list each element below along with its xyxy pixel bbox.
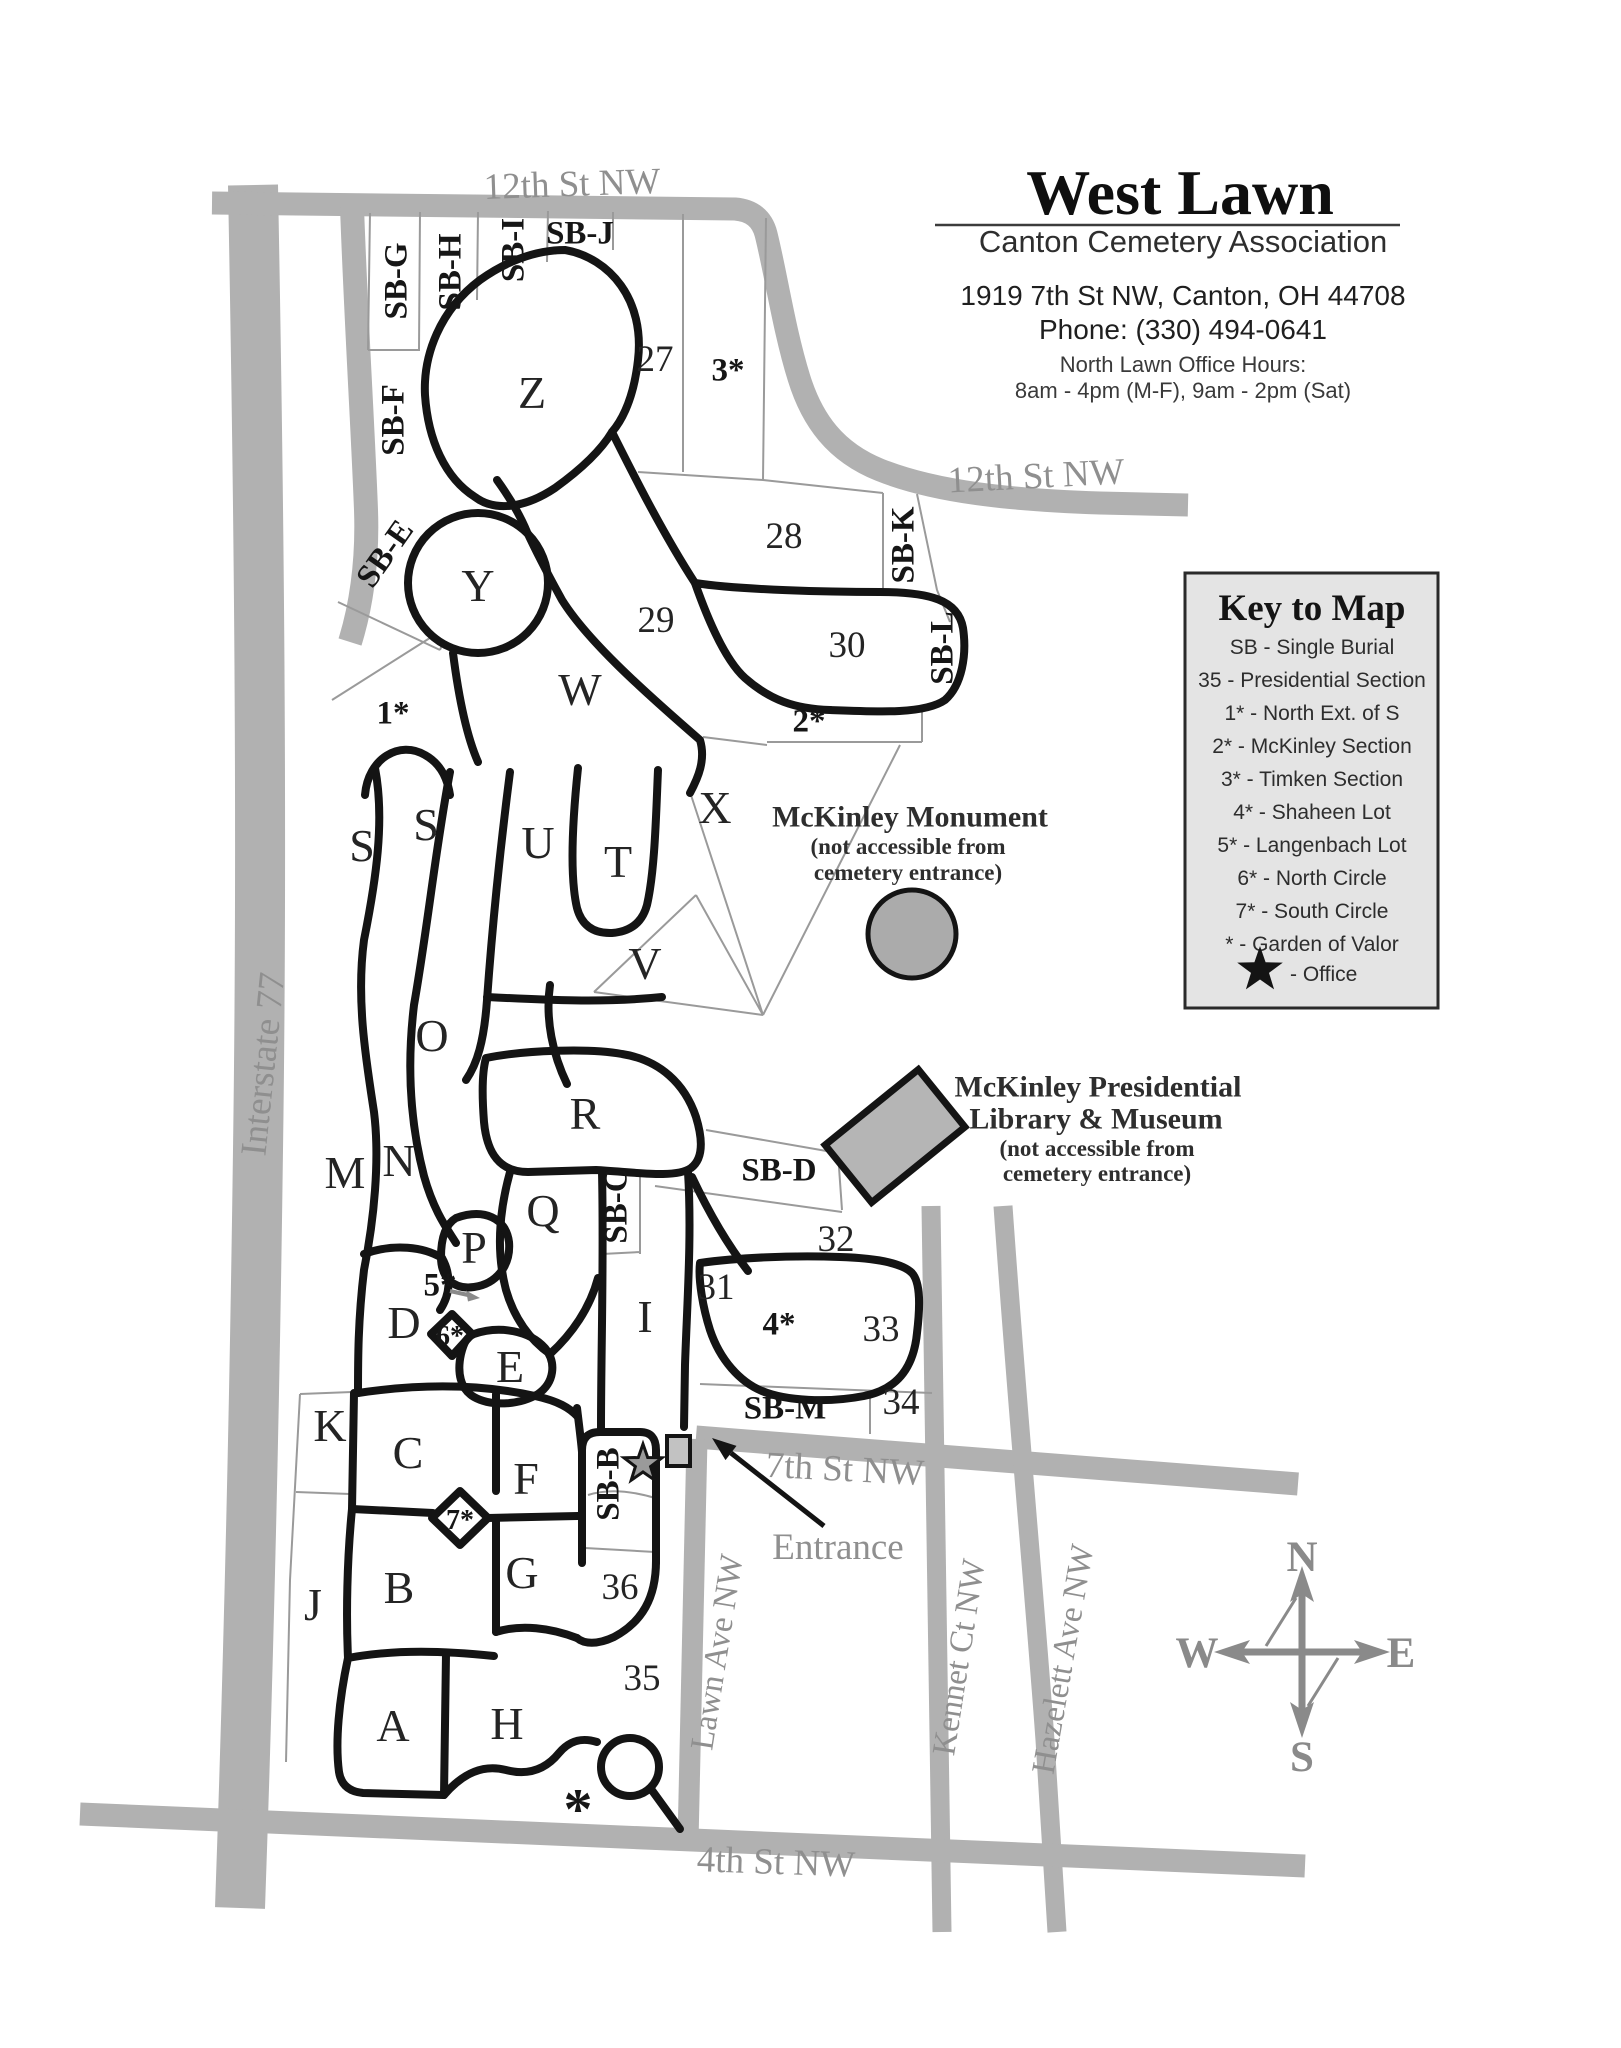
number-label-35: 35 (624, 1658, 661, 1699)
section-label-d: D (387, 1297, 420, 1348)
map-canvas: Z Y W S S U T X V O N M R Q P D E I K C … (0, 0, 1621, 2048)
legend-entry-7star: 7* - South Circle (1236, 900, 1389, 923)
compass-rose: N E S W (1176, 1534, 1416, 1781)
section-label-y: Y (461, 560, 494, 611)
special-label-5star: 5* (424, 1268, 457, 1304)
org-name: Canton Cemetery Association (979, 224, 1387, 259)
section-label-g: G (505, 1547, 538, 1598)
legend-entry-4star: 4* - Shaheen Lot (1233, 801, 1391, 824)
mckinley-monument-shape (868, 890, 956, 978)
number-label-30: 30 (829, 625, 866, 666)
corridor-i-right (684, 1172, 690, 1427)
section-c-bottom (352, 1509, 433, 1513)
road-kennet-ct (931, 1206, 942, 1932)
museum-title-2: Library & Museum (969, 1103, 1222, 1136)
section-c-left (352, 1393, 354, 1509)
section-label-e: E (496, 1341, 524, 1392)
street-label-12th-west: 12th St NW (483, 161, 661, 208)
sb-label-i: SB-I (496, 218, 532, 282)
section-label-j: J (304, 1579, 322, 1630)
section-label-b: B (384, 1562, 415, 1613)
legend-entry-garden: * - Garden of Valor (1225, 933, 1399, 956)
number-label-36: 36 (602, 1567, 639, 1608)
office-building-shape (667, 1436, 690, 1466)
museum-note-2: cemetery entrance) (1003, 1161, 1191, 1186)
garden-circle-tail (651, 1789, 680, 1829)
section-label-f: F (513, 1453, 539, 1504)
entrance-label: Entrance (772, 1527, 903, 1568)
divider-a-h (444, 1654, 446, 1795)
special-label-3star: 3* (712, 353, 745, 389)
section-label-v: V (628, 938, 661, 989)
divider-y-w-left (453, 653, 478, 762)
legend-entry-sb: SB - Single Burial (1230, 636, 1395, 659)
section-b-bottom (348, 1652, 494, 1658)
number-label-32: 32 (818, 1219, 855, 1260)
legend-entry-office: - Office (1290, 963, 1357, 986)
divider-q-e (550, 1278, 598, 1354)
divider-g-h (496, 1628, 577, 1638)
monument-title: McKinley Monument (772, 801, 1048, 834)
number-label-31: 31 (698, 1267, 735, 1308)
legend-entry-5star: 5* - Langenbach Lot (1217, 834, 1406, 857)
sb-label-l: SB-L (925, 611, 961, 684)
section-b-left (347, 1509, 352, 1658)
special-label-garden-star: * (564, 1776, 593, 1841)
number-label-34: 34 (883, 1382, 920, 1423)
museum-note-1: (not accessible from (999, 1136, 1194, 1161)
road-hazelett-ave (1003, 1206, 1057, 1932)
sb-label-m: SB-M (744, 1391, 827, 1427)
langenbach-arrow-head (466, 1291, 480, 1302)
special-label-7star: 7* (446, 1505, 474, 1536)
section-label-h: H (490, 1698, 523, 1749)
special-label-6star: 6* (436, 1321, 464, 1352)
section-label-u: U (521, 817, 554, 868)
section-label-i: I (637, 1291, 652, 1342)
mckinley-museum-shape (825, 1069, 965, 1202)
page-title: West Lawn (1026, 157, 1334, 228)
section-label-n: N (382, 1135, 415, 1186)
legend-entry-35: 35 - Presidential Section (1198, 669, 1426, 692)
compass-label-e: E (1387, 1630, 1416, 1677)
sb-label-f: SB-F (376, 384, 412, 456)
special-label-1star: 1* (377, 696, 410, 732)
legend-entry-1star: 1* - North Ext. of S (1224, 702, 1399, 725)
section-label-t: T (604, 836, 632, 887)
map-labels: Z Y W S S U T X V O N M R Q P D E I K C … (233, 161, 1241, 1886)
legend-box: Key to Map SB - Single Burial 35 - Presi… (1185, 573, 1438, 1008)
special-label-4star: 4* (763, 1307, 796, 1343)
cemetery-map-page: Z Y W S S U T X V O N M R Q P D E I K C … (0, 0, 1621, 2048)
address-line: 1919 7th St NW, Canton, OH 44708 (960, 280, 1405, 311)
monument-note-1: (not accessible from (810, 834, 1005, 859)
compass-label-n: N (1286, 1534, 1317, 1581)
office-hours-label: North Lawn Office Hours: (1060, 352, 1307, 377)
divider-m-d (364, 1247, 442, 1258)
street-label-7th: 7th St NW (765, 1445, 925, 1494)
legend-title: Key to Map (1218, 588, 1405, 629)
office-hours-value: 8am - 4pm (M-F), 9am - 2pm (Sat) (1015, 378, 1351, 403)
section-label-r: R (570, 1088, 601, 1139)
number-label-29: 29 (638, 600, 675, 641)
section-label-m: M (325, 1147, 366, 1198)
legend-entry-3star: 3* - Timken Section (1221, 768, 1403, 791)
divider-v-bottom (487, 997, 662, 1000)
section-label-x: X (698, 782, 731, 833)
legend-entry-2star: 2* - McKinley Section (1212, 735, 1412, 758)
street-label-4th: 4th St NW (696, 1839, 856, 1886)
number-label-33: 33 (863, 1309, 900, 1350)
number-label-28: 28 (766, 516, 803, 557)
compass-label-w: W (1176, 1630, 1219, 1677)
section-label-w: W (558, 664, 602, 715)
legend-entry-6star: 6* - North Circle (1237, 867, 1386, 890)
finger-u-left (466, 772, 510, 1080)
section-label-q: Q (526, 1185, 559, 1236)
section-label-a: A (376, 1700, 409, 1751)
compass-se-fin (1308, 1658, 1338, 1706)
special-label-2star: 2* (793, 704, 826, 740)
section-label-c: C (393, 1427, 424, 1478)
phone-line: Phone: (330) 494-0641 (1039, 314, 1327, 345)
section-label-z: Z (518, 367, 546, 418)
header-block: West Lawn Canton Cemetery Association 19… (935, 157, 1406, 403)
sb-label-d: SB-D (741, 1153, 816, 1189)
road-lawn-ave (688, 1439, 697, 1842)
section-label-s-west: S (349, 820, 375, 871)
sb-label-j: SB-J (546, 216, 614, 252)
compass-nw-fin (1266, 1598, 1296, 1646)
sb-label-c: SB-C (599, 1168, 635, 1243)
sb-label-g: SB-G (379, 242, 415, 319)
section-label-k: K (313, 1400, 346, 1451)
number-label-27: 27 (637, 339, 674, 380)
section-label-p: P (461, 1222, 487, 1273)
sb-label-b: SB-B (591, 1447, 627, 1520)
section-label-s-east: S (413, 799, 439, 850)
sb-label-k: SB-K (886, 506, 922, 583)
section-label-o: O (415, 1010, 448, 1061)
sb-label-h: SB-H (433, 233, 469, 310)
section-f-bottom (488, 1516, 578, 1518)
monument-note-2: cemetery entrance) (814, 860, 1002, 885)
museum-title-1: McKinley Presidential (955, 1071, 1242, 1104)
compass-label-s: S (1290, 1734, 1314, 1781)
